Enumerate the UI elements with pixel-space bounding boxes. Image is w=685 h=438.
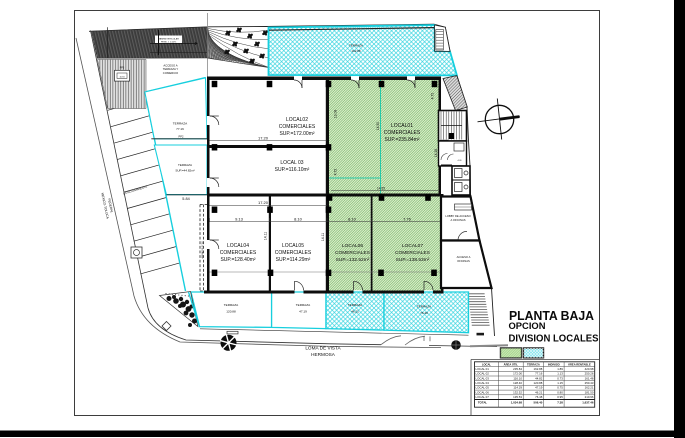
svg-text:506.40: 506.40 [534, 401, 543, 405]
svg-text:76.48: 76.48 [535, 395, 543, 399]
svg-text:TERRAZA: TERRAZA [349, 44, 363, 48]
svg-text:4.72: 4.72 [431, 93, 435, 100]
svg-text:OPCION: OPCION [509, 321, 546, 331]
svg-text:LOCAL06: LOCAL06 [342, 243, 363, 249]
svg-text:PEND. 1 1.00%: PEND. 1 1.00% [161, 41, 176, 43]
svg-text:1.13: 1.13 [557, 372, 563, 376]
svg-text:TOTAL: TOTAL [478, 401, 488, 405]
svg-text:77.16: 77.16 [176, 127, 184, 131]
svg-text:44.82: 44.82 [535, 376, 543, 380]
svg-text:172.00: 172.00 [513, 372, 522, 376]
svg-text:SUP.=172.00m²: SUP.=172.00m² [279, 131, 314, 137]
svg-text:76.48: 76.48 [420, 311, 428, 315]
svg-text:SUP.=114.29m²: SUP.=114.29m² [276, 257, 311, 263]
svg-text:17.20: 17.20 [258, 135, 269, 140]
svg-text:LOCAL 03: LOCAL 03 [476, 376, 490, 380]
svg-text:SUP.=116.10m²: SUP.=116.10m² [275, 167, 310, 173]
svg-text:LOCAL 06: LOCAL 06 [476, 390, 490, 394]
svg-text:LOCAL 03: LOCAL 03 [280, 160, 303, 166]
svg-text:128.40: 128.40 [513, 381, 522, 385]
svg-text:LOCAL05: LOCAL05 [282, 243, 304, 249]
svg-text:250.26: 250.26 [585, 372, 594, 376]
svg-text:COMERCIALES: COMERCIALES [275, 250, 312, 256]
svg-text:TERRAZA: TERRAZA [417, 305, 432, 309]
svg-text:COMERCIALES: COMERCIALES [395, 250, 430, 256]
svg-text:SUP.=235.84m²: SUP.=235.84m² [384, 137, 419, 143]
svg-text:1,637.46: 1,637.46 [582, 401, 594, 405]
svg-text:14.50: 14.50 [376, 122, 380, 131]
svg-text:47.19: 47.19 [299, 310, 307, 314]
svg-text:LOCAL 07: LOCAL 07 [476, 395, 490, 399]
svg-text:10.94: 10.94 [119, 76, 125, 78]
svg-text:120.88: 120.88 [226, 310, 236, 314]
svg-text:COMERCIALES: COMERCIALES [384, 130, 421, 136]
svg-text:210.96: 210.96 [585, 395, 594, 399]
svg-text:LOCAL 01: LOCAL 01 [476, 367, 490, 371]
svg-text:46.21: 46.21 [535, 390, 543, 394]
svg-text:46.21: 46.21 [351, 310, 359, 314]
svg-text:14.11: 14.11 [321, 233, 325, 241]
svg-text:0.75: 0.75 [557, 386, 563, 390]
svg-text:INDIVISO: INDIVISO [548, 363, 560, 367]
svg-text:1.89: 1.89 [557, 367, 563, 371]
svg-text:420.98: 420.98 [585, 367, 594, 371]
svg-text:LOCAL 05: LOCAL 05 [476, 386, 490, 390]
svg-text:162.88: 162.88 [351, 49, 361, 53]
svg-text:0.80: 0.80 [557, 390, 563, 394]
svg-text:COMERCIALES: COMERCIALES [335, 250, 370, 256]
svg-text:116.10: 116.10 [513, 376, 522, 380]
svg-text:77.16: 77.16 [535, 372, 543, 376]
svg-text:SUP.=138.53m²: SUP.=138.53m² [396, 257, 430, 263]
svg-text:13.08: 13.08 [334, 110, 338, 119]
svg-text:LOCAL04: LOCAL04 [227, 243, 249, 249]
svg-text:SUP.=44.82m²: SUP.=44.82m² [175, 169, 194, 173]
svg-text:OFICINAS: OFICINAS [457, 259, 470, 263]
svg-text:HERMOSA: HERMOSA [311, 352, 336, 357]
svg-text:235.84: 235.84 [513, 367, 522, 371]
svg-text:14.26: 14.26 [434, 149, 438, 158]
svg-text:LOBBY DE ACCESO: LOBBY DE ACCESO [445, 214, 470, 218]
svg-text:COMERCIO: COMERCIO [163, 71, 179, 75]
svg-text:TERRAZA: TERRAZA [296, 303, 311, 307]
svg-text:RAMPA VEHICULAR: RAMPA VEHICULAR [158, 37, 179, 40]
svg-text:47.19: 47.19 [535, 386, 543, 390]
svg-text:LOCAL02: LOCAL02 [286, 117, 308, 123]
svg-text:4.72: 4.72 [334, 169, 338, 176]
svg-text:9.13: 9.13 [235, 216, 244, 221]
svg-text:PP3: PP3 [120, 67, 125, 70]
svg-text:162.88: 162.88 [534, 367, 543, 371]
svg-text:TERRAZA: TERRAZA [348, 303, 363, 307]
svg-text:ACCESO A: ACCESO A [457, 255, 471, 259]
svg-text:TERRAZA: TERRAZA [173, 122, 188, 126]
svg-text:LOCAL 04: LOCAL 04 [476, 381, 490, 385]
svg-text:LOCAL07: LOCAL07 [402, 243, 423, 249]
svg-text:17.20: 17.20 [258, 200, 269, 205]
svg-text:1,034.68: 1,034.68 [511, 401, 523, 405]
svg-text:8.10: 8.10 [348, 216, 357, 221]
svg-text:1.15: 1.15 [557, 381, 563, 385]
svg-text:5.84: 5.84 [182, 197, 189, 201]
svg-text:14.11: 14.11 [264, 232, 268, 240]
svg-text:TERRAZA: TERRAZA [178, 163, 192, 167]
svg-text:LOMA DE VISTA: LOMA DE VISTA [305, 346, 341, 351]
svg-text:SUP.=132.52m²: SUP.=132.52m² [336, 257, 370, 263]
svg-text:8.10: 8.10 [294, 216, 303, 221]
svg-text:0.95: 0.95 [557, 395, 563, 399]
svg-text:181.50: 181.50 [585, 390, 594, 394]
svg-text:135.53: 135.53 [513, 395, 522, 399]
svg-text:LOCAL: LOCAL [482, 363, 492, 367]
svg-text:LOCAL01: LOCAL01 [391, 123, 413, 129]
svg-text:7.76: 7.76 [403, 216, 412, 221]
svg-text:114.29: 114.29 [513, 386, 522, 390]
svg-text:COMERCIALES: COMERCIALES [279, 124, 316, 130]
svg-text:132.52: 132.52 [513, 390, 522, 394]
svg-text:PP2: PP2 [179, 134, 184, 138]
svg-text:ANDADOR 37.08: ANDADOR 37.08 [201, 241, 204, 259]
svg-text:161.48: 161.48 [585, 376, 594, 380]
svg-text:LOCAL 02: LOCAL 02 [476, 372, 490, 376]
svg-text:162.21: 162.21 [585, 386, 594, 390]
svg-text:250.43: 250.43 [585, 381, 594, 385]
svg-text:14.55: 14.55 [377, 186, 385, 190]
svg-text:7.38: 7.38 [557, 401, 563, 405]
svg-text:0.73: 0.73 [557, 376, 563, 380]
svg-text:TERRAZA: TERRAZA [224, 303, 239, 307]
svg-text:A OFICINAS: A OFICINAS [450, 218, 465, 222]
svg-text:SUP.=128.40m²: SUP.=128.40m² [220, 257, 255, 263]
svg-text:DIVISION LOCALES: DIVISION LOCALES [509, 334, 599, 345]
svg-text:COMERCIALES: COMERCIALES [220, 250, 257, 256]
svg-text:TERRAZA: TERRAZA [527, 363, 540, 367]
svg-text:120.88: 120.88 [534, 381, 543, 385]
